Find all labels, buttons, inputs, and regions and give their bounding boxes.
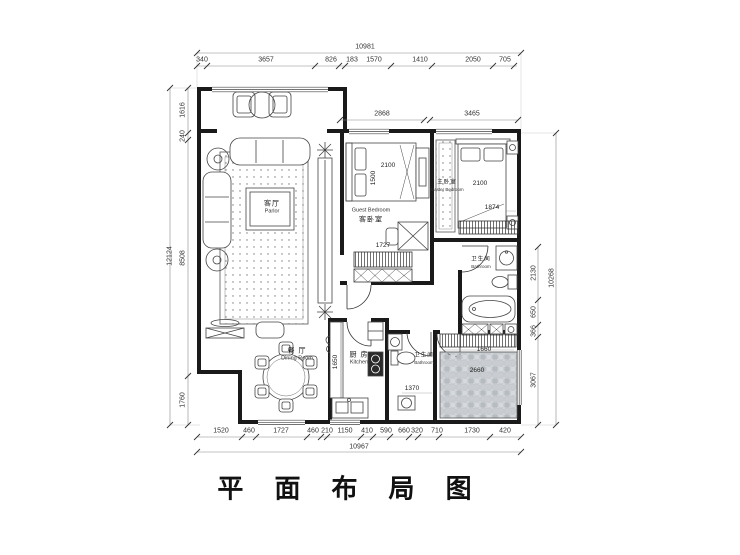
dim-laundry-cabinet: 1660 bbox=[477, 347, 491, 354]
dim-kitchen-counter: 1650 bbox=[333, 355, 340, 369]
dim-top-seg: 183 bbox=[346, 57, 358, 64]
balcony-table bbox=[249, 92, 275, 118]
dim-bottom-seg: 1520 bbox=[213, 428, 229, 435]
room-label-master-bath-en: Bathroom bbox=[471, 265, 491, 270]
room-label-parlor-zh: 客厅 bbox=[264, 201, 280, 208]
shoe-cabinet bbox=[354, 269, 412, 282]
dresser bbox=[459, 221, 518, 234]
desk bbox=[416, 148, 429, 198]
plant bbox=[317, 304, 333, 320]
dim-top-seg: 1410 bbox=[412, 57, 428, 64]
tv-cabinet bbox=[318, 158, 332, 303]
dining-chair bbox=[303, 385, 317, 398]
dim-top-seg: 3657 bbox=[258, 57, 274, 64]
dim-top-seg: 826 bbox=[325, 57, 337, 64]
room-label-kitchen-en: Kitchen bbox=[350, 360, 368, 366]
dim-top-inner: 3465 bbox=[464, 111, 480, 118]
dim-top-seg: 340 bbox=[196, 57, 208, 64]
dining-chair bbox=[279, 399, 293, 412]
footstool bbox=[256, 322, 284, 338]
living-room-furniture bbox=[203, 138, 341, 353]
dim-left-seg: 240 bbox=[180, 130, 187, 142]
floor-plan-canvas: 10981 340 3657 826 183 1570 1410 2050 70… bbox=[0, 0, 740, 555]
room-label-guest-bedroom-zh: 客卧室 bbox=[359, 217, 383, 224]
dim-top-inner: 2868 bbox=[374, 111, 390, 118]
dim-top-seg: 2050 bbox=[465, 57, 481, 64]
dim-bottom-total: 10967 bbox=[349, 444, 368, 451]
dim-bottom-seg: 710 bbox=[431, 428, 443, 435]
bathtub bbox=[462, 296, 515, 322]
toilet bbox=[391, 351, 415, 365]
dim-bottom-seg: 210 bbox=[321, 428, 333, 435]
room-label-kitchen-zh: 厨 房 bbox=[350, 352, 369, 359]
sink bbox=[496, 246, 517, 270]
tile-floor bbox=[440, 352, 517, 418]
dim-left-total: 12124 bbox=[167, 246, 174, 265]
dim-bottom-seg: 1730 bbox=[464, 428, 480, 435]
fridge bbox=[368, 322, 383, 340]
dim-tiled-room: 2660 bbox=[470, 368, 484, 375]
dim-guest-bed-width: 2100 bbox=[381, 163, 395, 170]
plant bbox=[317, 142, 333, 158]
room-label-bathroom-zh: 卫生间 bbox=[414, 353, 434, 359]
dining-chair bbox=[255, 385, 269, 398]
guest-bed bbox=[346, 143, 416, 201]
room-label-master-bedroom-zh: 主卧室 bbox=[437, 180, 457, 186]
room-label-parlor-en: Parlor bbox=[265, 209, 280, 215]
sink bbox=[398, 396, 415, 410]
dim-bottom-seg: 1727 bbox=[273, 428, 289, 435]
dim-right-total: 10268 bbox=[549, 268, 556, 287]
room-label-dining-en: Dining Room bbox=[281, 356, 313, 362]
toilet bbox=[492, 275, 517, 289]
dim-right-seg: 3067 bbox=[531, 372, 538, 388]
dim-master-bed-side: 1874 bbox=[485, 205, 499, 212]
room-label-master-bedroom-en: Master Bedroom bbox=[430, 188, 463, 193]
room-label-bathroom-en: Bathroom bbox=[414, 361, 434, 366]
dining-furniture bbox=[255, 342, 317, 412]
dim-guest-bed-length: 1500 bbox=[371, 171, 378, 185]
dim-top-total: 10981 bbox=[355, 44, 374, 51]
balcony-furniture bbox=[233, 92, 291, 118]
dim-bottom-seg: 410 bbox=[361, 428, 373, 435]
stove bbox=[368, 352, 383, 376]
nightstand bbox=[507, 141, 518, 154]
dim-bottom-seg: 460 bbox=[243, 428, 255, 435]
dim-right-seg: 366 bbox=[531, 325, 538, 337]
dim-bottom-seg: 660 bbox=[398, 428, 410, 435]
dim-bottom-seg: 420 bbox=[499, 428, 511, 435]
dim-bottom-seg: 590 bbox=[380, 428, 392, 435]
dim-bottom-seg: 460 bbox=[307, 428, 319, 435]
side-table bbox=[398, 222, 428, 250]
dim-top-seg: 705 bbox=[499, 57, 511, 64]
dim-left-seg: 1760 bbox=[180, 392, 187, 408]
dim-bath-fixture: 1370 bbox=[405, 386, 419, 393]
room-label-guest-bedroom-en: Guest Bedroom bbox=[352, 208, 391, 214]
dim-guest-wardrobe: 1727 bbox=[376, 243, 390, 250]
dim-master-bed-width: 2100 bbox=[473, 181, 487, 188]
washing-machine bbox=[388, 334, 402, 350]
sofa bbox=[203, 172, 231, 248]
sofa bbox=[230, 138, 310, 165]
dim-bottom-seg: 320 bbox=[411, 428, 423, 435]
room-label-dining-zh: 餐 厅 bbox=[288, 348, 307, 355]
plan-title: 平 面 布 局 图 bbox=[217, 469, 482, 506]
room-label-master-bath-zh: 卫生间 bbox=[471, 257, 491, 263]
dim-right-seg: 650 bbox=[531, 306, 538, 318]
wardrobe bbox=[354, 252, 412, 267]
dim-top-seg: 1570 bbox=[366, 57, 382, 64]
dining-chair bbox=[255, 356, 269, 369]
dim-right-seg: 2130 bbox=[531, 265, 538, 281]
dim-left-seg: 8508 bbox=[180, 250, 187, 266]
kitchen-sink bbox=[332, 398, 368, 418]
carpet bbox=[220, 152, 308, 324]
kitchen-fixtures bbox=[330, 322, 383, 418]
dim-bottom-seg: 1150 bbox=[337, 428, 352, 435]
dim-left-seg: 1616 bbox=[180, 102, 187, 118]
